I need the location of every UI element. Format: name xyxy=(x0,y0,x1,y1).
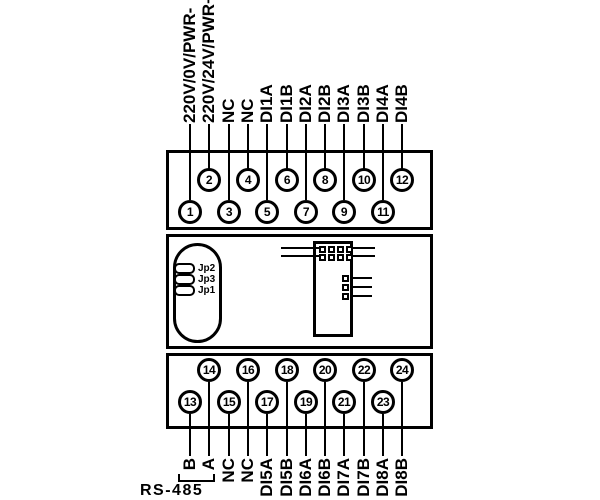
led-cell-di7 xyxy=(337,254,344,261)
callout-line-di4 xyxy=(352,247,375,249)
terminal-15: 15 xyxy=(217,390,241,414)
terminal-9: 9 xyxy=(332,200,356,224)
pin-label-8: DI2B xyxy=(316,3,334,123)
wiring-diagram: 220V/0V/PWR- 220V/24V/PWR+ NC NC DI1A DI… xyxy=(0,0,600,500)
led-cell-di1 xyxy=(319,246,326,253)
terminal-14: 14 xyxy=(197,358,221,382)
pin-label-9: DI3A xyxy=(335,3,353,123)
pin-label-23: DI8A xyxy=(374,458,392,500)
leader-line xyxy=(247,124,249,170)
leader-line xyxy=(286,124,288,170)
leader-line xyxy=(401,382,403,456)
status-led-alarm xyxy=(342,293,349,300)
jumper-jp3-label: Jp3 xyxy=(198,274,215,285)
leader-line xyxy=(228,124,230,200)
leader-line xyxy=(363,124,365,170)
pin-label-1: 220V/0V/PWR- xyxy=(181,3,199,123)
leader-line xyxy=(189,414,191,456)
terminal-1: 1 xyxy=(178,200,202,224)
terminal-11: 11 xyxy=(371,200,395,224)
leader-line xyxy=(382,124,384,200)
led-cell-di2 xyxy=(328,246,335,253)
leader-line xyxy=(305,414,307,456)
pin-label-24: DI8B xyxy=(393,458,411,500)
jumper-jp3 xyxy=(174,274,195,285)
pin-label-10: DI3B xyxy=(355,3,373,123)
terminal-5: 5 xyxy=(255,200,279,224)
status-led-power xyxy=(342,275,349,282)
pin-label-22: DI7B xyxy=(355,458,373,500)
pin-label-4: NC xyxy=(239,3,257,123)
leader-line xyxy=(324,124,326,170)
leader-line xyxy=(247,382,249,456)
led-cell-di5 xyxy=(319,254,326,261)
callout-line-di8 xyxy=(352,255,375,257)
pin-label-7: DI2A xyxy=(297,3,315,123)
leader-line xyxy=(343,414,345,456)
callout-line-rs485 xyxy=(351,286,372,288)
jumper-jp2-label: Jp2 xyxy=(198,263,215,274)
led-cell-di3 xyxy=(337,246,344,253)
callout-line-alarm xyxy=(351,295,372,297)
terminal-20: 20 xyxy=(313,358,337,382)
jumper-jp2 xyxy=(174,263,195,274)
pin-label-12: DI4B xyxy=(393,3,411,123)
terminal-2: 2 xyxy=(197,168,221,192)
terminal-4: 4 xyxy=(236,168,260,192)
leader-line xyxy=(286,382,288,456)
terminal-22: 22 xyxy=(352,358,376,382)
pin-label-21: DI7A xyxy=(335,458,353,500)
pin-label-20: DI6B xyxy=(316,458,334,500)
terminal-16: 16 xyxy=(236,358,260,382)
leader-line xyxy=(305,124,307,200)
pin-label-16: NC xyxy=(239,458,257,500)
leader-line xyxy=(189,124,191,200)
leader-line xyxy=(266,414,268,456)
terminal-13: 13 xyxy=(178,390,202,414)
terminal-18: 18 xyxy=(275,358,299,382)
terminal-6: 6 xyxy=(275,168,299,192)
pin-label-19: DI6A xyxy=(297,458,315,500)
terminal-12: 12 xyxy=(390,168,414,192)
pin-label-15: NC xyxy=(220,458,238,500)
leader-line xyxy=(228,414,230,456)
terminal-19: 19 xyxy=(294,390,318,414)
terminal-23: 23 xyxy=(371,390,395,414)
callout-line-di1 xyxy=(281,247,320,249)
terminal-3: 3 xyxy=(217,200,241,224)
leader-line xyxy=(208,382,210,456)
leader-line xyxy=(382,414,384,456)
led-cell-di6 xyxy=(328,254,335,261)
terminal-10: 10 xyxy=(352,168,376,192)
callout-line-power xyxy=(351,277,372,279)
pin-label-6: DI1B xyxy=(278,3,296,123)
leader-line xyxy=(208,124,210,170)
pin-label-3: NC xyxy=(220,3,238,123)
pin-label-5: DI1A xyxy=(258,3,276,123)
jumper-jp1 xyxy=(174,285,195,296)
status-led-rs485 xyxy=(342,284,349,291)
leader-line xyxy=(266,124,268,200)
terminal-21: 21 xyxy=(332,390,356,414)
terminal-7: 7 xyxy=(294,200,318,224)
pin-label-14: A xyxy=(200,458,218,500)
terminal-8: 8 xyxy=(313,168,337,192)
pin-label-13: B xyxy=(181,458,199,500)
leader-line xyxy=(363,382,365,456)
leader-line xyxy=(401,124,403,170)
terminal-17: 17 xyxy=(255,390,279,414)
terminal-24: 24 xyxy=(390,358,414,382)
pin-label-11: DI4A xyxy=(374,3,392,123)
leader-line xyxy=(324,382,326,456)
leader-line xyxy=(343,124,345,200)
pin-label-2: 220V/24V/PWR+ xyxy=(200,3,218,123)
jumper-jp1-label: Jp1 xyxy=(198,285,215,296)
pin-label-18: DI5B xyxy=(278,458,296,500)
pin-label-17: DI5A xyxy=(258,458,276,500)
callout-line-di5 xyxy=(281,255,320,257)
